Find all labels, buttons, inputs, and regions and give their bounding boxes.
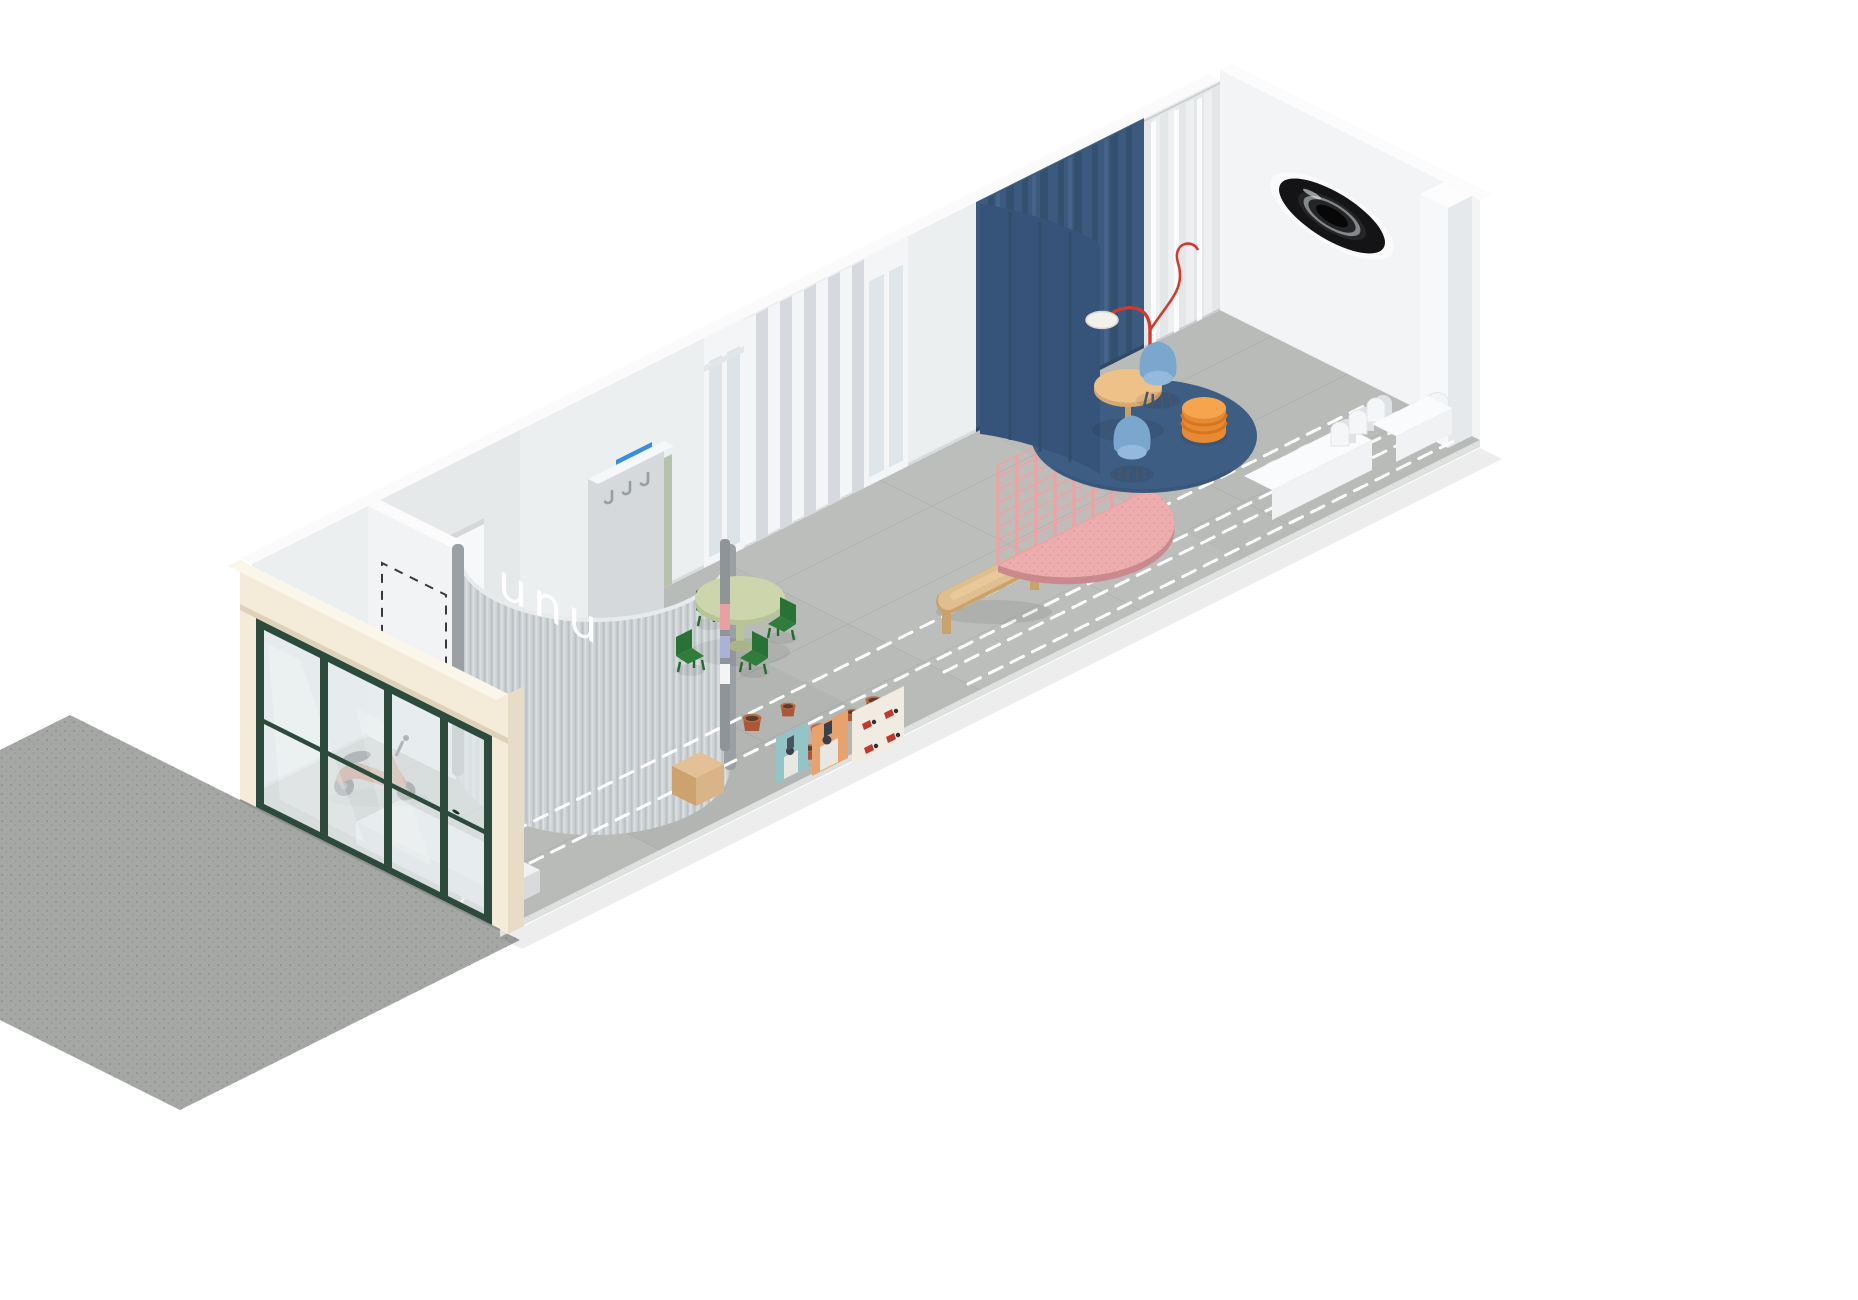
glass-door-section (864, 236, 908, 488)
poster-column (720, 539, 730, 751)
sheer-curtain-windows (1144, 82, 1220, 348)
orange-stool (1180, 397, 1228, 446)
column-poster-lilac (720, 636, 730, 658)
scene-canvas: unu (0, 0, 1858, 1300)
column-poster-pink (720, 604, 730, 630)
facade-side-return (508, 686, 524, 934)
column-poster-white (720, 664, 730, 684)
cafe-table (695, 576, 785, 620)
isometric-store-rendering: unu (0, 0, 1858, 1300)
glass-partition (704, 318, 744, 568)
lamp-shade (1086, 312, 1118, 329)
